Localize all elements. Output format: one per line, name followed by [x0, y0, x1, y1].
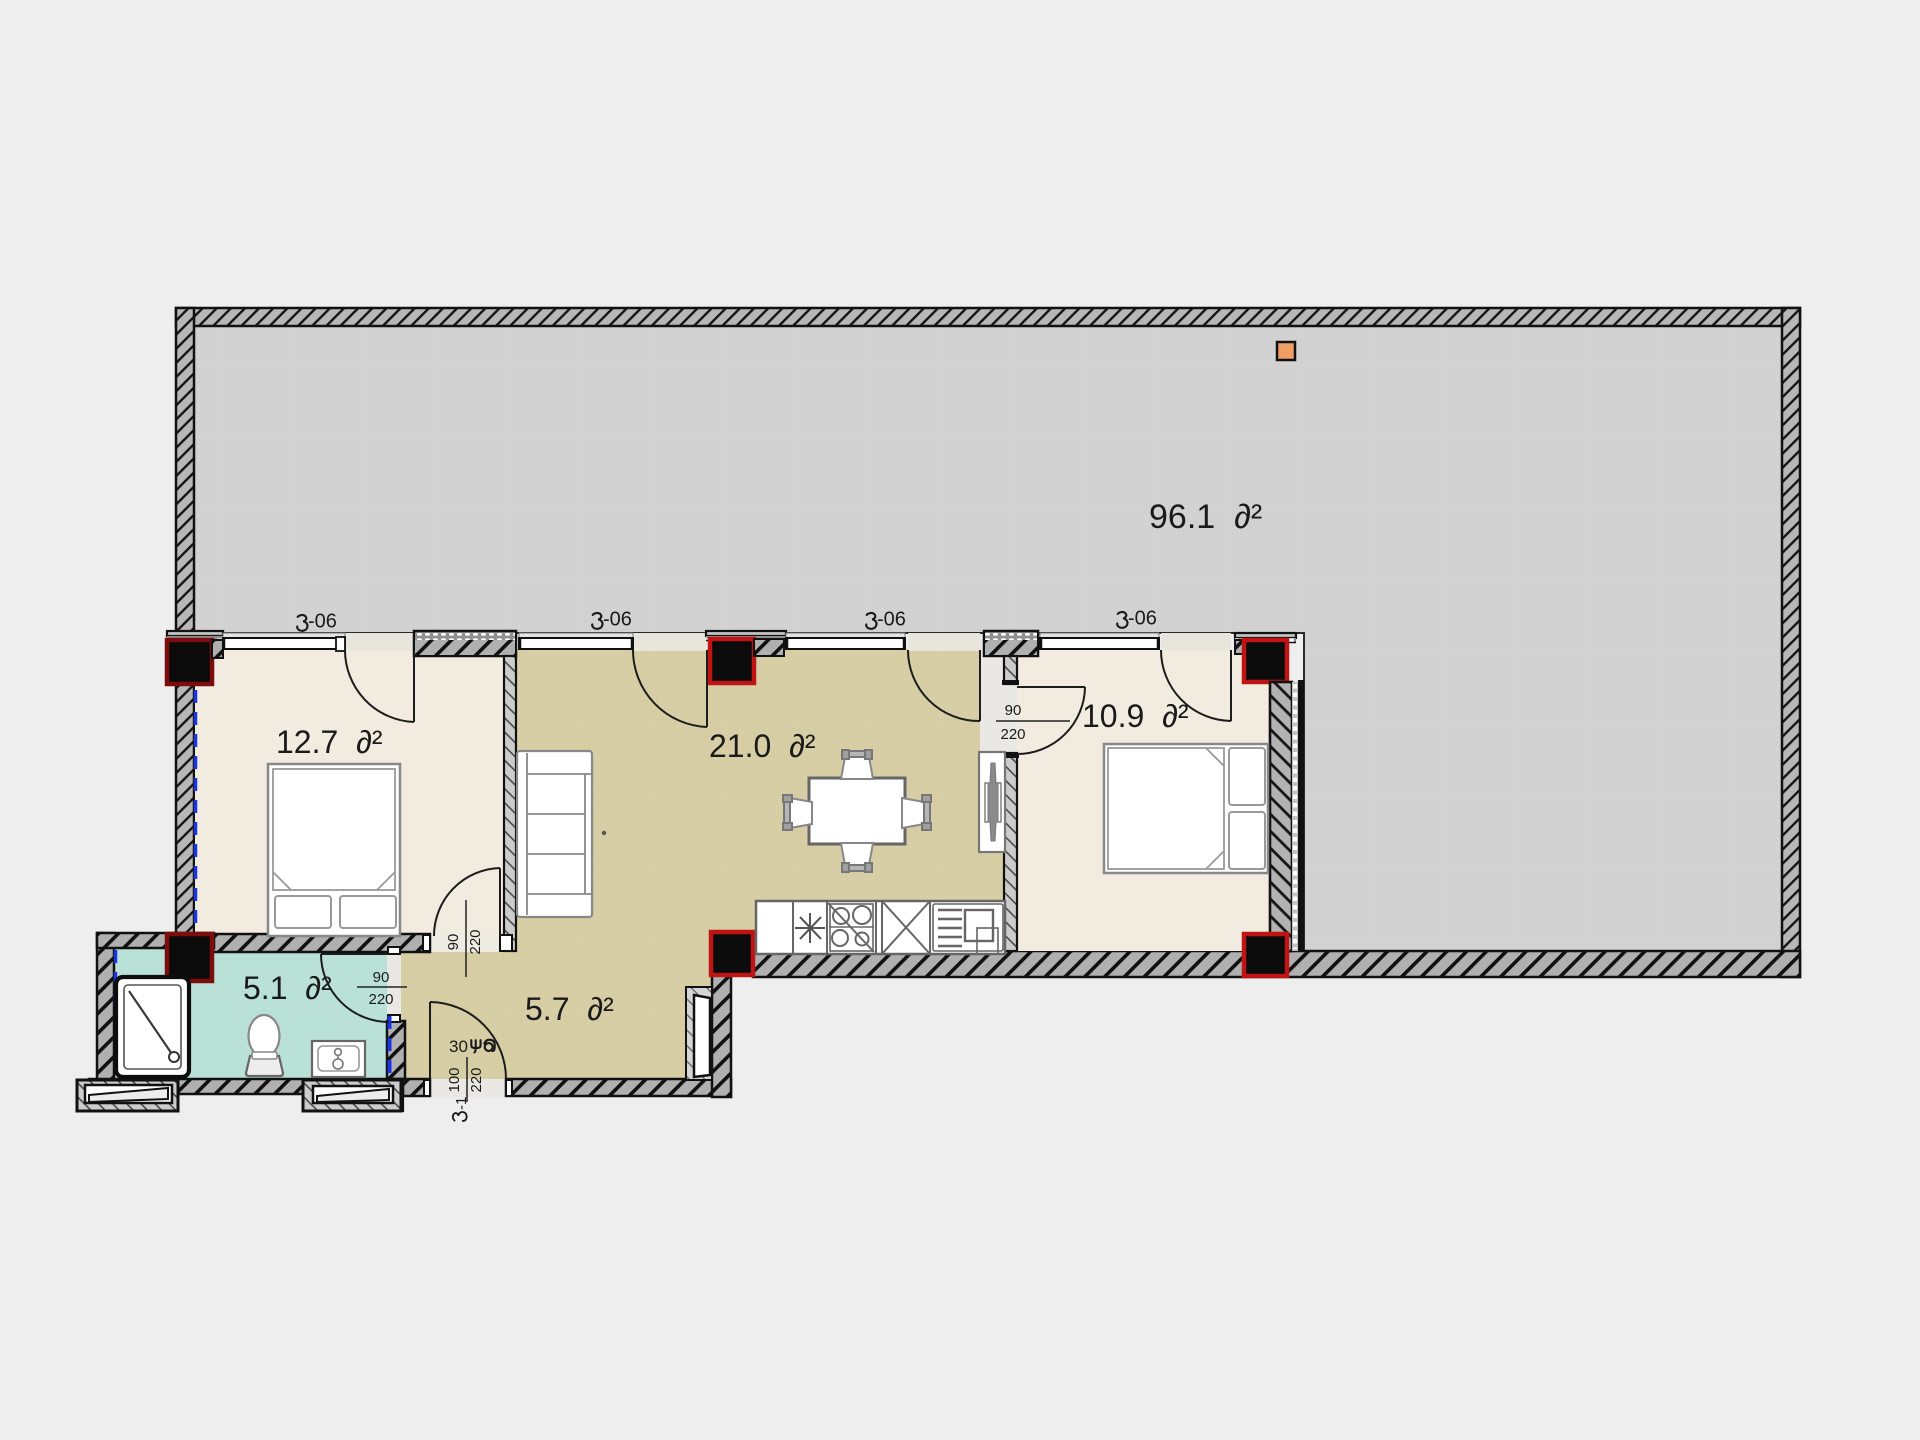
svg-text:220: 220 [1000, 726, 1025, 743]
svg-text:-1: -1 [453, 1097, 470, 1110]
svg-text:-06: -06 [1128, 608, 1157, 630]
svg-text:220: 220 [467, 929, 484, 954]
svg-text:220: 220 [468, 1067, 485, 1092]
svg-text:5.1 ∂²: 5.1 ∂² [243, 970, 332, 1006]
svg-text:30: 30 [449, 1037, 468, 1056]
svg-text:10.9 ∂²: 10.9 ∂² [1082, 698, 1189, 734]
svg-text:90: 90 [445, 934, 462, 951]
svg-text:90: 90 [1005, 702, 1022, 719]
svg-text:21.0 ∂²: 21.0 ∂² [709, 728, 816, 764]
svg-text:5.7 ∂²: 5.7 ∂² [525, 991, 614, 1027]
svg-text:12.7 ∂²: 12.7 ∂² [276, 724, 383, 760]
svg-text:-06: -06 [308, 611, 337, 633]
svg-text:-06: -06 [877, 609, 906, 631]
svg-text:100: 100 [446, 1067, 463, 1092]
svg-text:-06: -06 [603, 609, 632, 631]
svg-text:90: 90 [373, 969, 390, 986]
svg-text:220: 220 [368, 991, 393, 1008]
svg-text:96.1 ∂²: 96.1 ∂² [1149, 498, 1262, 536]
